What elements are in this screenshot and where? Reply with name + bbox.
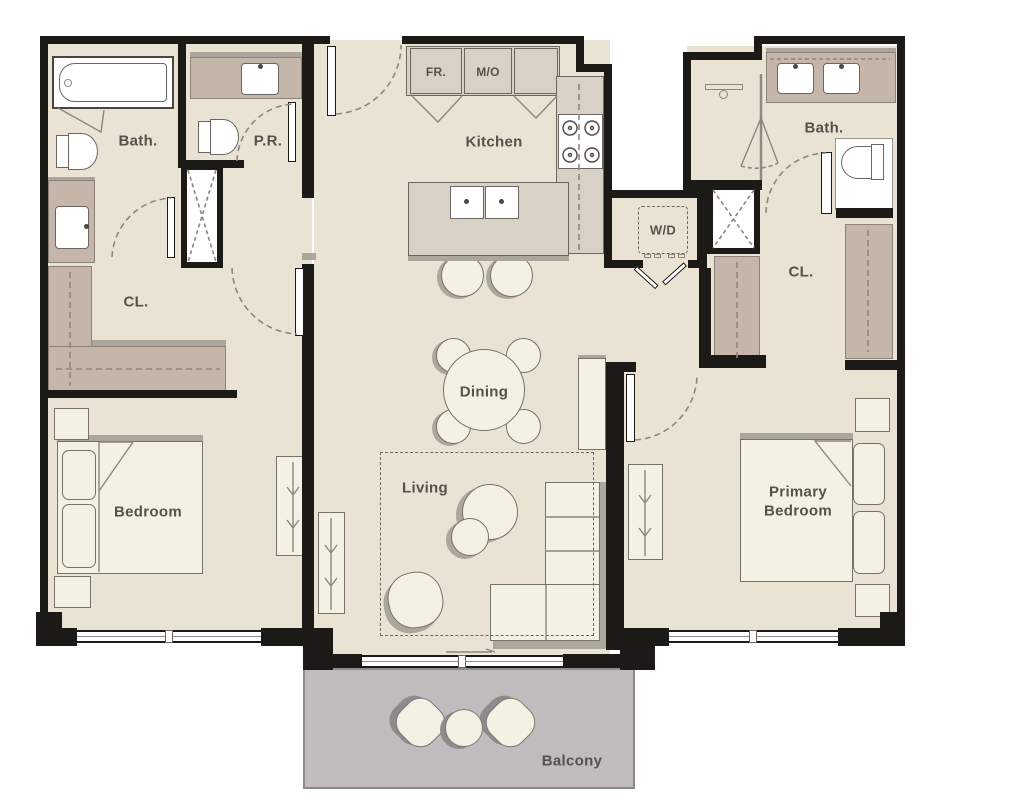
shaft-x <box>188 170 216 262</box>
wardrobe-dash <box>737 230 868 358</box>
room-label-kitchen: Kitchen <box>465 134 522 151</box>
shower-spray-arc <box>741 163 778 168</box>
room-label-bath-left: Bath. <box>119 133 158 150</box>
room-label-closet-left: CL. <box>123 294 148 311</box>
entry-door-swing <box>336 45 401 114</box>
bath2-door-swing <box>766 153 826 213</box>
tub-screen <box>58 108 104 132</box>
shaft-x <box>713 190 754 248</box>
room-label-primary-bedroom: Primary Bedroom <box>752 483 844 521</box>
room-label-bath-right: Bath. <box>805 120 844 137</box>
balcony-threshold <box>446 649 495 652</box>
appliance-label-microwave: M/O <box>476 65 500 79</box>
bath-door-swing <box>112 198 171 257</box>
annotation-overlay <box>0 0 1030 801</box>
room-label-closet-right: CL. <box>788 264 813 281</box>
bed-fold <box>815 441 851 486</box>
room-label-bedroom: Bedroom <box>114 504 182 521</box>
closet-rod <box>287 462 299 552</box>
appliance-label-fridge: FR. <box>426 65 446 79</box>
appliance-door-swing <box>412 96 557 122</box>
shower-spray <box>741 118 778 166</box>
room-label-powder: P.R. <box>254 133 282 150</box>
wardrobe-dash <box>56 272 220 386</box>
sofa-cushion-lines <box>545 517 599 640</box>
room-label-laundry: W/D <box>650 223 676 238</box>
closet-rod <box>325 518 337 610</box>
closet-rod <box>639 470 651 556</box>
primary-door-swing <box>635 374 697 440</box>
stove-burners <box>563 121 599 162</box>
closet-door-swing <box>232 268 297 334</box>
room-label-balcony: Balcony <box>542 753 602 770</box>
floor-plan: Bath. P.R. Kitchen FR. M/O W/D CL. CL. B… <box>0 0 1030 801</box>
room-label-dining: Dining <box>460 384 508 401</box>
room-label-living: Living <box>402 480 448 497</box>
